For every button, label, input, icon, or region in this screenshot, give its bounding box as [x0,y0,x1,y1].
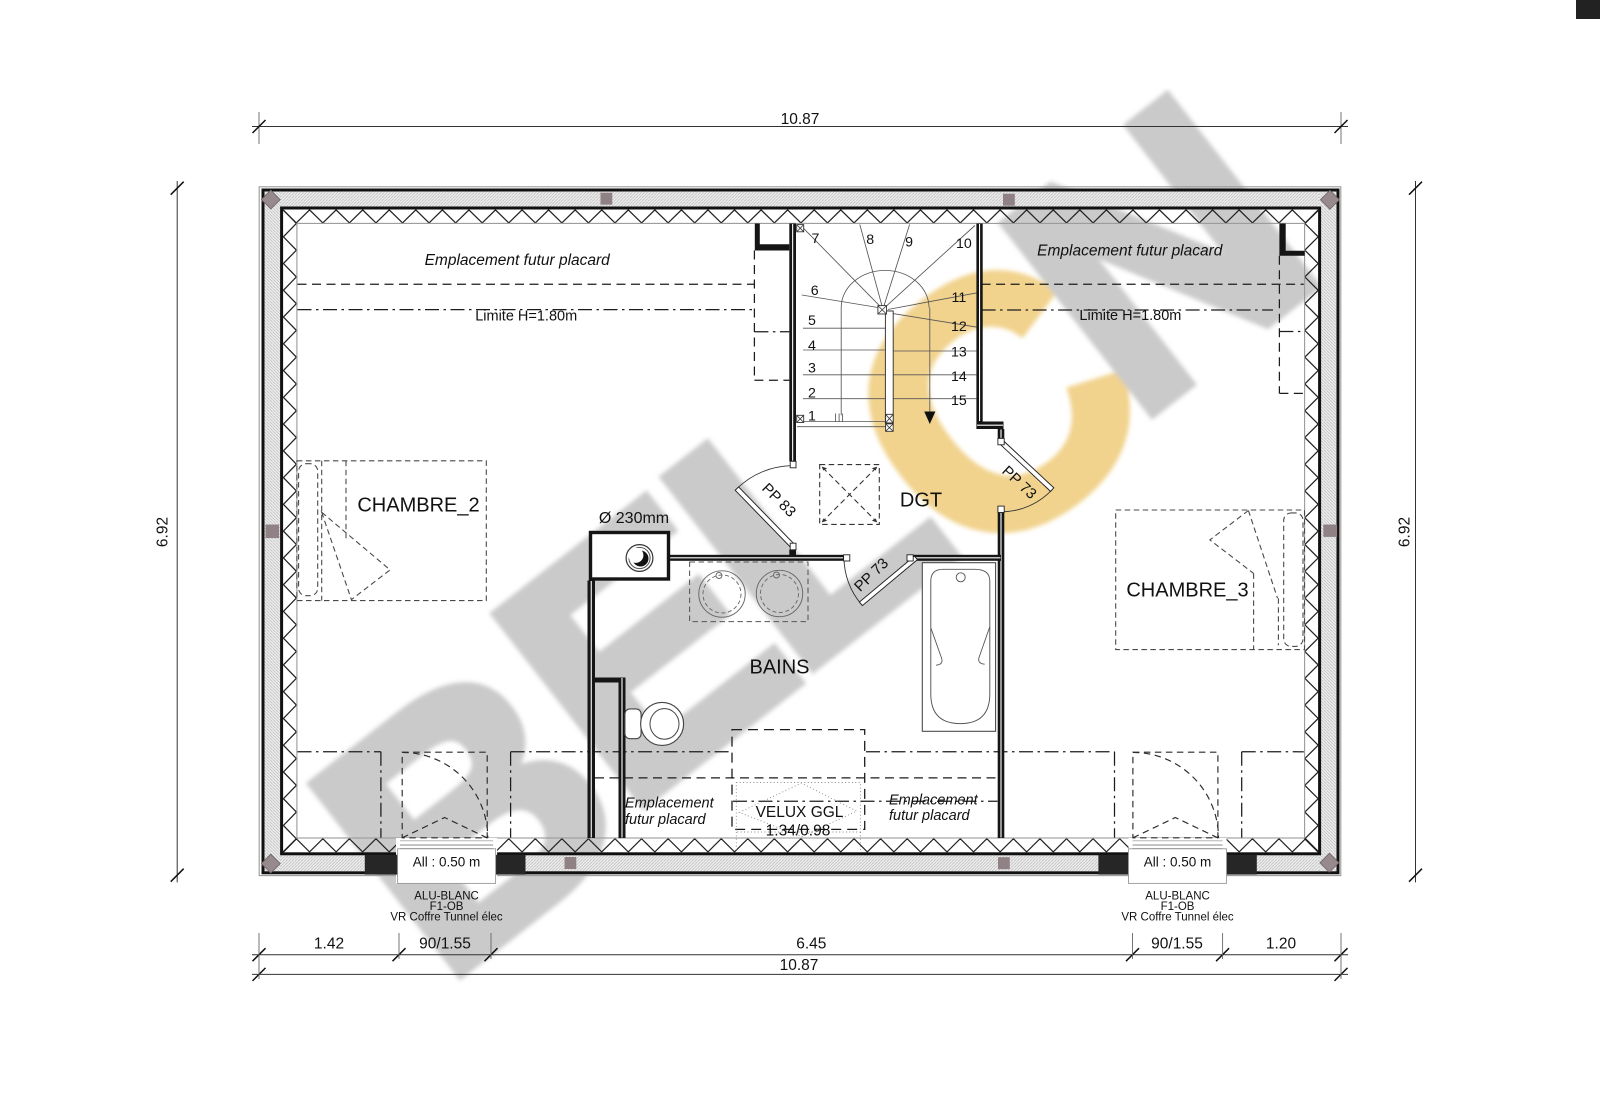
svg-text:15: 15 [951,393,967,409]
svg-text:All : 0.50 m: All : 0.50 m [413,854,481,869]
svg-text:VELUX GGL: VELUX GGL [756,804,844,821]
svg-text:90/1.55: 90/1.55 [419,936,471,953]
svg-text:10.87: 10.87 [781,111,820,128]
svg-text:1: 1 [808,408,816,424]
svg-text:90/1.55: 90/1.55 [1151,936,1203,953]
svg-text:1.20: 1.20 [1266,936,1297,953]
svg-text:1.34/0.98: 1.34/0.98 [766,823,831,840]
svg-text:VR Coffre Tunnel élec: VR Coffre Tunnel élec [1121,912,1234,924]
svg-text:1.42: 1.42 [314,936,344,953]
svg-text:10: 10 [956,236,972,252]
svg-text:Limite H=1.80m: Limite H=1.80m [1079,308,1181,324]
svg-text:Emplacement: Emplacement [625,796,715,812]
svg-text:5: 5 [808,313,816,329]
svg-text:6.92: 6.92 [1397,517,1414,547]
svg-text:futur placard: futur placard [889,808,971,824]
svg-text:VR Coffre Tunnel élec: VR Coffre Tunnel élec [390,912,503,924]
svg-text:futur placard: futur placard [625,812,707,828]
svg-text:10.87: 10.87 [780,957,819,974]
svg-text:13: 13 [951,344,967,360]
svg-text:All : 0.50 m: All : 0.50 m [1144,854,1212,869]
svg-text:12: 12 [951,319,967,335]
svg-text:Limite H=1.80m: Limite H=1.80m [475,308,577,324]
svg-text:6.45: 6.45 [796,936,826,953]
svg-text:Emplacement futur placard: Emplacement futur placard [1037,243,1224,260]
svg-text:3: 3 [808,361,816,377]
svg-text:9: 9 [905,234,913,250]
svg-text:CHAMBRE_3: CHAMBRE_3 [1126,579,1248,601]
svg-text:2: 2 [808,385,816,401]
svg-text:11: 11 [952,290,967,306]
svg-text:8: 8 [866,232,874,248]
svg-text:Ø 230mm: Ø 230mm [599,510,669,527]
svg-text:DGT: DGT [900,490,942,512]
svg-text:BAINS: BAINS [749,657,809,679]
svg-text:Emplacement futur placard: Emplacement futur placard [425,252,612,269]
svg-text:7: 7 [812,231,820,247]
svg-text:Emplacement: Emplacement [889,792,979,808]
svg-text:CHAMBRE_2: CHAMBRE_2 [357,494,479,516]
svg-text:4: 4 [808,338,816,354]
svg-text:6.92: 6.92 [155,517,172,547]
svg-text:6: 6 [811,283,819,299]
svg-text:14: 14 [951,369,967,385]
